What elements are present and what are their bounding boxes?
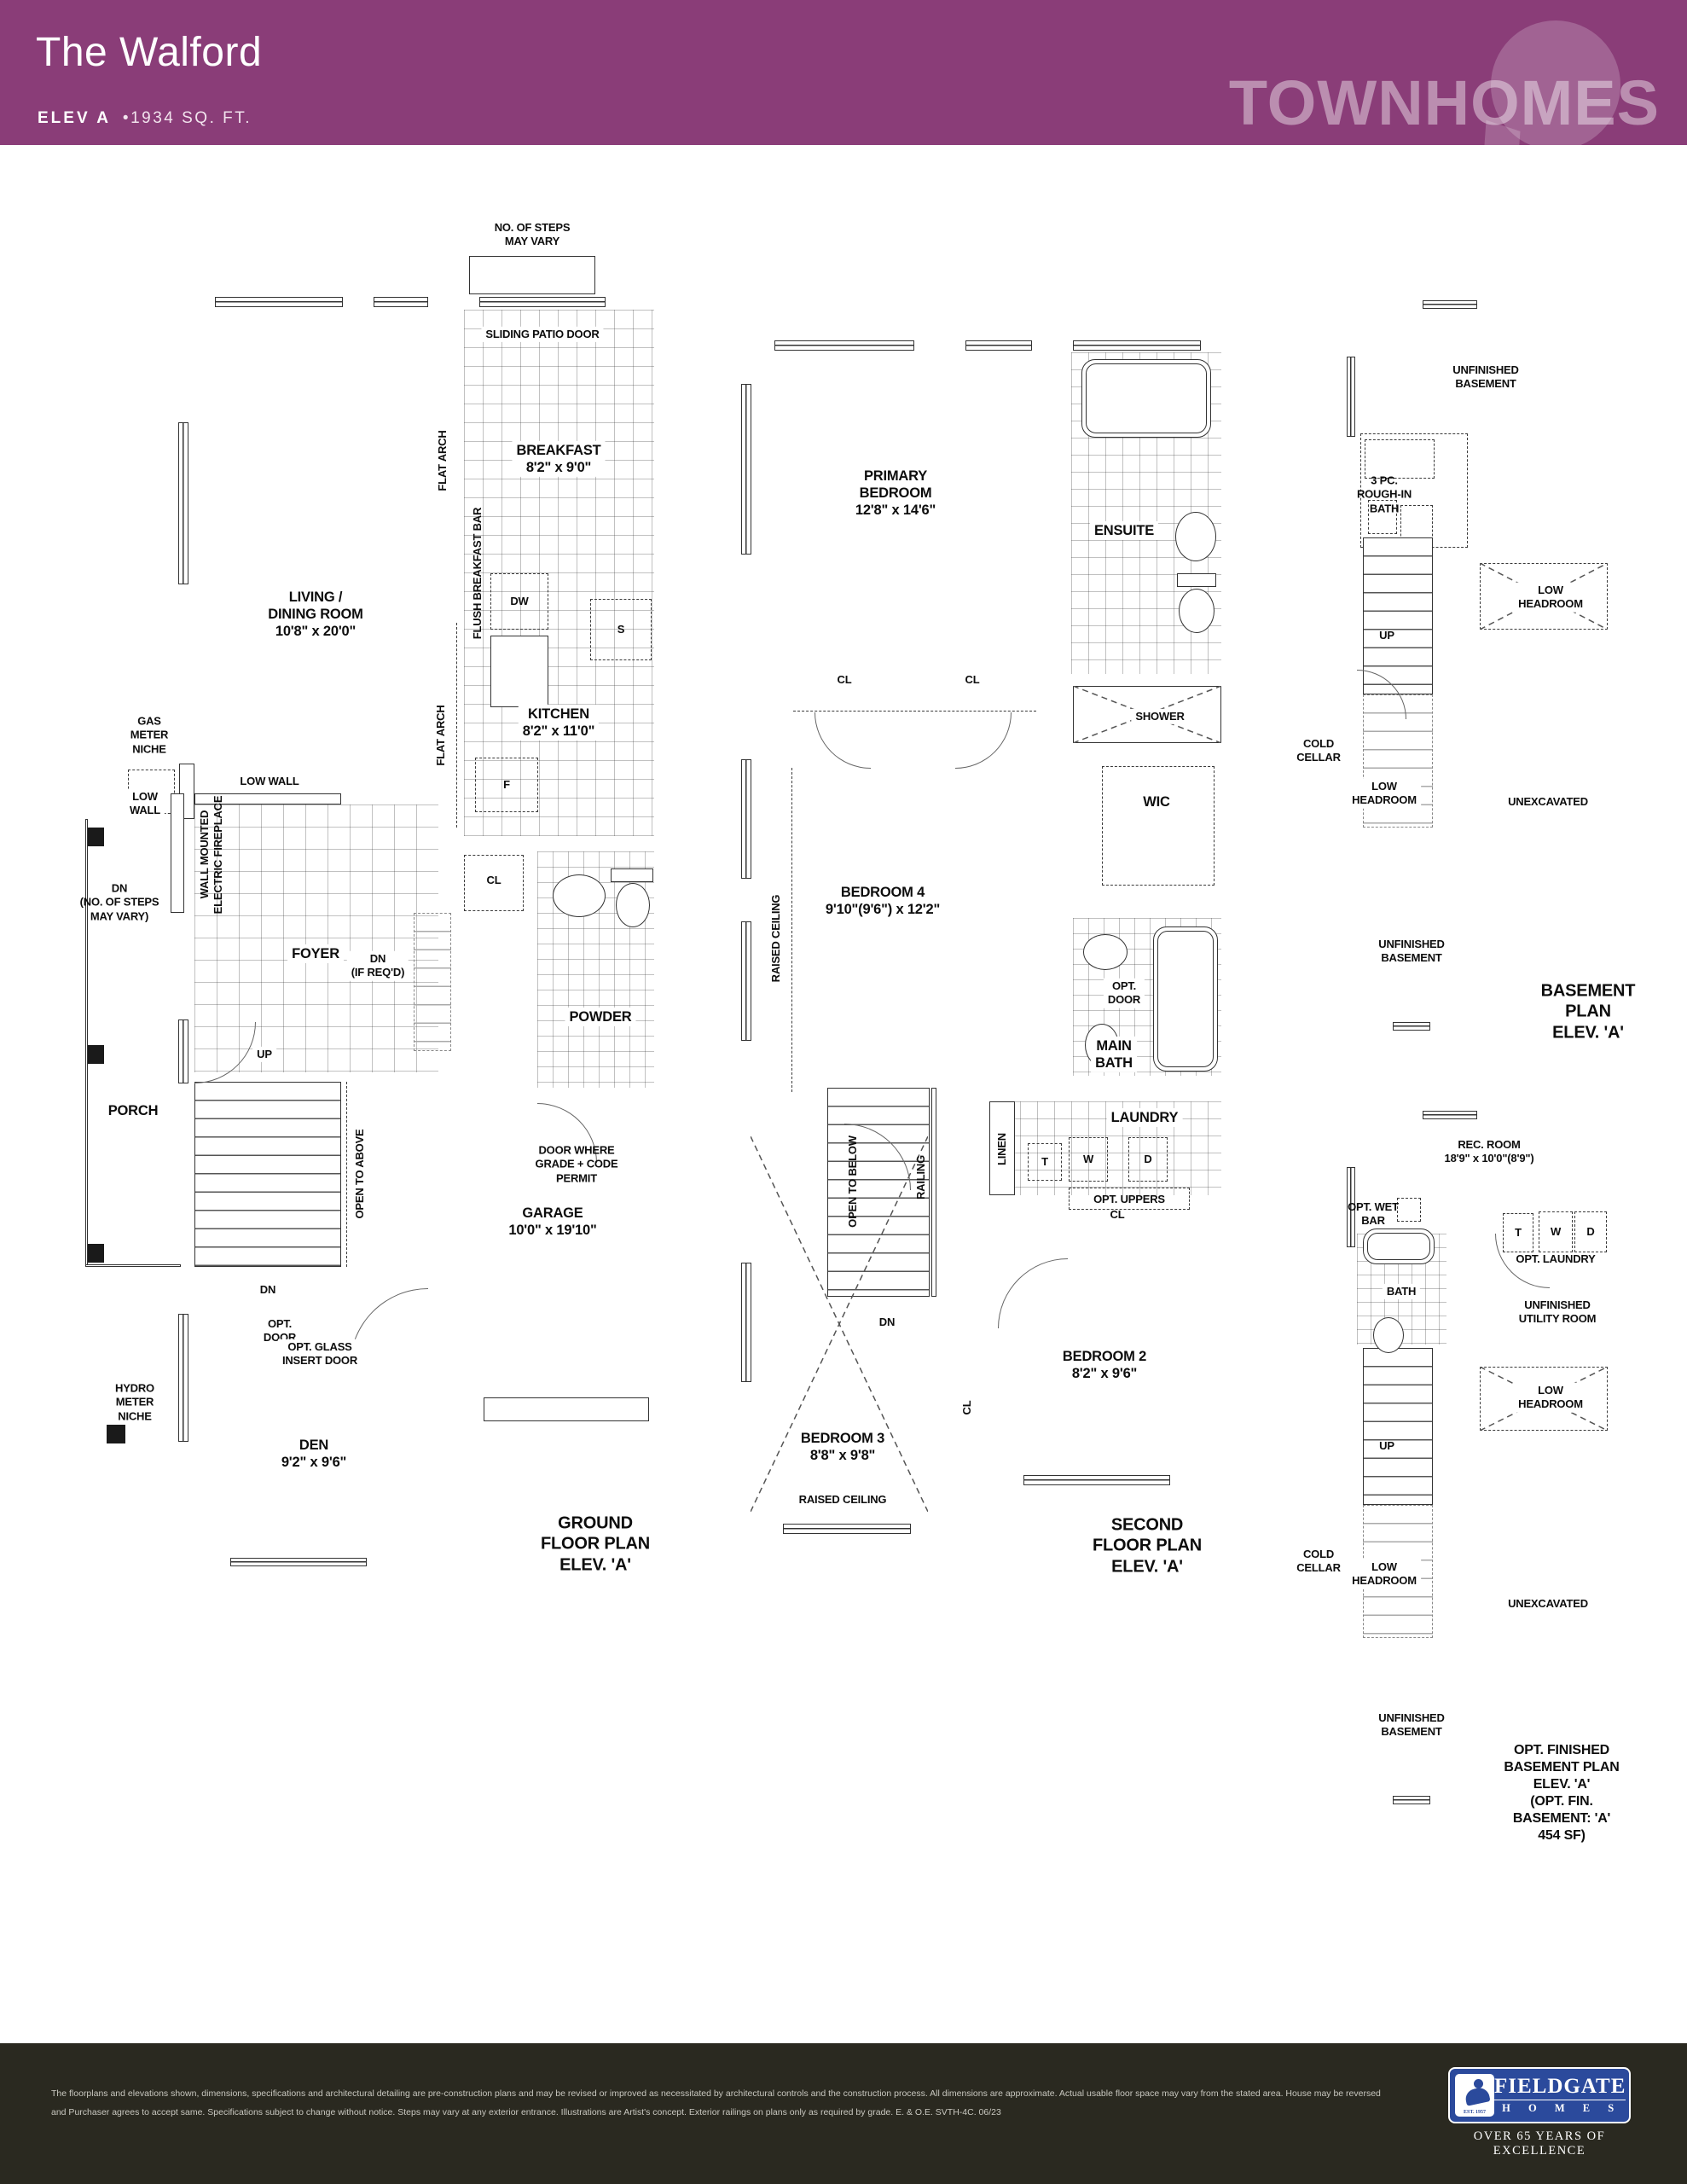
- ground-floor-plan: NO. OF STEPS MAY VARY SLIDING PATIO DOOR…: [60, 205, 708, 1587]
- wall-segment: [1343, 297, 1620, 311]
- wall-segment: [1279, 648, 1291, 793]
- room-label-unexcavated: UNEXCAVATED: [1508, 795, 1588, 809]
- porch-post: [85, 1045, 104, 1064]
- opt-finished-basement-plan: REC. ROOM 18'9" x 10'0"(8'9") OPT. WET B…: [1279, 1092, 1680, 1843]
- window: [1393, 1022, 1430, 1031]
- plan-caption-opt-basement: OPT. FINISHED BASEMENT PLAN ELEV. 'A' (O…: [1503, 1742, 1621, 1844]
- door-swing: [194, 1022, 256, 1083]
- room-label-powder: POWDER: [565, 1008, 635, 1026]
- room-label-unfinished-basement-2: UNFINISHED BASEMENT: [1378, 938, 1444, 966]
- window: [1347, 357, 1355, 437]
- label-washer: W: [1551, 1225, 1561, 1239]
- note-dn-steps-vary: DN (NO. OF STEPS MAY VARY): [80, 882, 159, 924]
- fixture-outline: [931, 1088, 936, 1297]
- label-flat-arch-lower: FLAT ARCH: [434, 705, 448, 765]
- label-washer: W: [1083, 1153, 1093, 1166]
- elevation-label: ELEV A: [38, 109, 111, 127]
- wall-segment: [609, 836, 670, 851]
- label-sliding-patio-door: SLIDING PATIO DOOR: [481, 327, 603, 342]
- plumbing-fixture: [1179, 589, 1215, 633]
- window: [1423, 300, 1477, 309]
- label-opt-laundry: OPT. LAUNDRY: [1516, 1252, 1595, 1266]
- sqft-label: •1934 SQ. FT.: [123, 109, 252, 127]
- room-label-ensuite: ENSUITE: [1090, 521, 1158, 540]
- wall-segment: [989, 1241, 1003, 1472]
- room-label-living-dining: LIVING / DINING ROOM 10'8" x 20'0": [268, 589, 362, 640]
- staircase: [1363, 537, 1433, 694]
- wall-segment: [1488, 1694, 1620, 1708]
- room-label-cold-cellar: COLD CELLAR: [1296, 1548, 1341, 1576]
- fixture-outline: [484, 1397, 649, 1421]
- room-label-utility: UNFINISHED UTILITY ROOM: [1519, 1298, 1597, 1327]
- wall-segment: [1058, 352, 1071, 674]
- fieldgate-logo-text: FIELDGATE H O M E S: [1494, 2076, 1626, 2115]
- plan-caption-ground: GROUND FLOOR PLAN ELEV. 'A': [539, 1513, 652, 1575]
- porch-post: [85, 1244, 104, 1263]
- wall-segment: [437, 1088, 452, 1420]
- wall-segment: [1073, 743, 1228, 755]
- wall-segment: [1003, 1229, 1237, 1241]
- window: [1423, 1111, 1477, 1119]
- wall-segment: [1475, 627, 1488, 1019]
- label-low-headroom-stairs: LOW HEADROOM: [1348, 1560, 1421, 1589]
- window: [741, 384, 751, 555]
- plan-caption-second: SECOND FLOOR PLAN ELEV. 'A': [1090, 1514, 1205, 1577]
- fieldgate-logo-box: EST. 1957 FIELDGATE H O M E S: [1448, 2067, 1631, 2123]
- page-title: The Walford: [36, 29, 262, 76]
- fieldgate-name: FIELDGATE: [1494, 2076, 1626, 2097]
- room-label-porch: PORCH: [108, 1102, 159, 1119]
- label-railing: RAILING: [914, 1155, 928, 1199]
- room-label-kitchen: KITCHEN 8'2" x 11'0": [519, 705, 599, 741]
- dashed-line: [456, 623, 457, 828]
- label-fireplace: WALL MOUNTED ELECTRIC FIREPLACE: [198, 796, 226, 915]
- dashed-outline: [1397, 1198, 1421, 1222]
- label-closet-3: CL: [1110, 1208, 1125, 1222]
- wall-segment: [1343, 793, 1357, 1019]
- fixture-outline: [490, 636, 548, 707]
- bathtub: [1153, 926, 1218, 1072]
- basement-plan: UNFINISHED BASEMENT 3 PC. ROUGH-IN BATH …: [1279, 282, 1680, 1066]
- label-hydro-meter-niche: HYDRO METER NICHE: [115, 1382, 154, 1424]
- wall-segment: [437, 1420, 452, 1570]
- window: [178, 1314, 188, 1442]
- label-up: UP: [1379, 629, 1394, 642]
- label-dn-if-reqd: DN (IF REQ'D): [347, 951, 409, 981]
- room-label-foyer: FOYER: [287, 944, 344, 963]
- label-opt-wet-bar: OPT. WET BAR: [1348, 1200, 1399, 1228]
- note-steps-may-vary: NO. OF STEPS MAY VARY: [495, 221, 571, 249]
- door-swing: [998, 1258, 1068, 1328]
- room-label-breakfast: BREAKFAST 8'2" x 9'0": [512, 441, 605, 477]
- fixture-outline: [85, 1264, 181, 1267]
- door-swing: [815, 712, 871, 769]
- wall-segment: [384, 1072, 437, 1088]
- window: [1393, 1796, 1430, 1804]
- label-dishwasher: DW: [510, 595, 528, 608]
- label-linen: LINEN: [995, 1133, 1009, 1165]
- label-raised-ceiling-bed4: RAISED CEILING: [769, 895, 783, 983]
- brand-logo-townhomes: TOWNHOMES: [1229, 67, 1660, 139]
- wall-segment: [1343, 1604, 1357, 1792]
- crest-figure-head: [1474, 2079, 1483, 2088]
- fieldgate-crest-icon: EST. 1957: [1455, 2074, 1494, 2117]
- wall-segment: [1073, 1076, 1228, 1088]
- elevation-subtitle: ELEV A•1934 SQ. FT.: [38, 109, 252, 128]
- dashed-line: [793, 711, 1036, 712]
- wall-segment: [1475, 1429, 1488, 1792]
- crest-figure-body: [1464, 2086, 1490, 2106]
- door-swing: [955, 712, 1012, 769]
- dashed-line: [346, 1082, 347, 1267]
- wall-segment: [1356, 1019, 1544, 1032]
- header-banner: TOWNHOMES The Walford ELEV A•1934 SQ. FT…: [0, 0, 1687, 145]
- room-label-bedroom2: BEDROOM 2 8'2" x 9'6": [1063, 1348, 1146, 1382]
- wall-segment: [1495, 1194, 1607, 1206]
- porch-post: [107, 1425, 125, 1443]
- fixture-outline: [611, 868, 653, 882]
- label-tub-t: T: [1515, 1226, 1522, 1240]
- window: [1073, 340, 1201, 351]
- window: [215, 297, 343, 307]
- window: [374, 297, 428, 307]
- label-sink: S: [617, 623, 624, 636]
- note-door-where-grade: DOOR WHERE GRADE + CODE PERMIT: [536, 1144, 618, 1186]
- staircase-dashed: [414, 913, 451, 1051]
- room-label-garage: GARAGE 10'0" x 19'10": [508, 1205, 596, 1239]
- wall-segment: [524, 851, 537, 1088]
- label-shower: SHOWER: [1131, 709, 1188, 724]
- porch-post: [85, 828, 104, 846]
- label-dn-basement: DN: [260, 1283, 275, 1297]
- label-rough-in-bath: 3 PC. ROUGH-IN BATH: [1357, 474, 1412, 516]
- room-label-laundry: LAUNDRY: [1107, 1108, 1183, 1127]
- label-low-headroom-right: LOW HEADROOM: [1514, 1383, 1587, 1413]
- dashed-outline: [1365, 439, 1435, 479]
- wall-segment: [450, 310, 464, 617]
- plumbing-fixture: [1175, 512, 1216, 561]
- label-open-to-below: OPEN TO BELOW: [846, 1136, 860, 1228]
- window: [230, 1558, 367, 1566]
- room-label-unfinished-basement: UNFINISHED BASEMENT: [1452, 363, 1518, 392]
- wall-segment: [1433, 537, 1446, 759]
- room-label-den: DEN 9'2" x 9'6": [281, 1437, 346, 1471]
- bathtub: [1081, 359, 1211, 438]
- room-label-wic: WIC: [1143, 793, 1169, 810]
- staircase: [194, 1082, 341, 1267]
- window: [741, 759, 751, 879]
- label-fridge: F: [503, 778, 510, 792]
- window: [965, 340, 1032, 351]
- room-label-cold-cellar: COLD CELLAR: [1296, 737, 1341, 765]
- fixture-outline: [1177, 573, 1216, 587]
- wall-segment: [1607, 297, 1620, 785]
- label-low-wall-mid: LOW WALL: [235, 774, 303, 789]
- window: [178, 1019, 188, 1083]
- plumbing-fixture: [616, 883, 650, 927]
- label-opt-door: OPT. DOOR: [1104, 979, 1145, 1008]
- note-opt-glass-door: OPT. GLASS INSERT DOOR: [278, 1339, 362, 1369]
- wall-segment: [654, 294, 670, 1493]
- wall-segment: [1343, 537, 1357, 648]
- flyer-page: TOWNHOMES The Walford ELEV A•1934 SQ. FT…: [0, 0, 1687, 2184]
- label-low-wall-left: LOW WALL: [125, 789, 165, 819]
- crest-est-label: EST. 1957: [1455, 2110, 1494, 2115]
- room-label-bath: BATH: [1383, 1284, 1420, 1299]
- label-flat-arch-upper: FLAT ARCH: [436, 430, 449, 491]
- fixture-outline: [469, 256, 595, 294]
- window: [774, 340, 914, 351]
- wall-segment: [1073, 892, 1228, 904]
- room-label-main-bath: MAIN BATH: [1091, 1037, 1137, 1072]
- window: [1023, 1475, 1170, 1485]
- room-label-rec-room: REC. ROOM 18'9" x 10'0"(8'9"): [1445, 1138, 1534, 1166]
- dashed-outline: [1102, 766, 1215, 886]
- label-dn: DN: [879, 1316, 895, 1329]
- label-closet-2b: CL: [965, 673, 980, 687]
- window: [783, 1524, 911, 1534]
- wall-segment: [1073, 674, 1228, 686]
- wall-segment: [1279, 1459, 1291, 1604]
- window: [178, 422, 188, 584]
- wall-segment: [1607, 1107, 1620, 1708]
- staircase: [1363, 1348, 1433, 1505]
- label-low-headroom-stairs: LOW HEADROOM: [1348, 779, 1421, 809]
- fixture-outline: [171, 793, 184, 913]
- label-dryer: D: [1144, 1153, 1151, 1166]
- window: [741, 1263, 751, 1382]
- label-dryer: D: [1586, 1225, 1594, 1239]
- plumbing-fixture: [553, 874, 606, 917]
- wall-segment: [908, 644, 920, 712]
- wall-segment: [989, 1088, 1237, 1101]
- fieldgate-logo: EST. 1957 FIELDGATE H O M E S OVER 65 YE…: [1441, 2067, 1638, 2158]
- wall-segment: [1343, 1107, 1620, 1121]
- footer-bar: The floorplans and elevations shown, dim…: [0, 2043, 1687, 2184]
- plan-caption-basement: BASEMENT PLAN ELEV. 'A': [1541, 980, 1636, 1043]
- bathtub: [1363, 1228, 1435, 1264]
- wall-segment: [1343, 1348, 1357, 1459]
- label-open-to-above: OPEN TO ABOVE: [353, 1129, 367, 1218]
- wall-segment: [1343, 648, 1357, 793]
- plumbing-fixture: [1083, 934, 1128, 970]
- wall-segment: [537, 1088, 670, 1103]
- fieldgate-homes: H O M E S: [1494, 2100, 1626, 2115]
- label-closet-4: CL: [960, 1401, 974, 1415]
- room-label-unexcavated: UNEXCAVATED: [1508, 1597, 1588, 1611]
- wall-segment: [1446, 1234, 1458, 1356]
- second-floor-plan: PRIMARY BEDROOM 12'8" x 14'6" ENSUITE SH…: [716, 256, 1262, 1604]
- label-flush-breakfast-bar: FLUSH BREAKFAST BAR: [471, 508, 484, 639]
- window: [741, 921, 751, 1041]
- label-low-headroom-right: LOW HEADROOM: [1514, 583, 1587, 613]
- disclaimer-text: The floorplans and elevations shown, dim…: [51, 2084, 1382, 2122]
- wall-segment: [1433, 1348, 1446, 1570]
- wall-segment: [450, 836, 553, 851]
- wall-segment: [757, 629, 1058, 644]
- plumbing-fixture: [1373, 1317, 1404, 1353]
- label-tub-t: T: [1041, 1155, 1048, 1169]
- dashed-line: [791, 768, 792, 1092]
- room-label-bedroom4: BEDROOM 4 9'10"(9'6") x 12'2": [826, 884, 940, 918]
- room-label-unfinished-basement: UNFINISHED BASEMENT: [1378, 1711, 1444, 1740]
- wall-segment: [1221, 337, 1237, 1487]
- window: [479, 297, 606, 307]
- fieldgate-tagline: OVER 65 YEARS OF EXCELLENCE: [1441, 2129, 1638, 2158]
- label-opt-uppers: OPT. UPPERS: [1093, 1193, 1165, 1206]
- room-label-bedroom3: BEDROOM 3 8'8" x 9'8": [801, 1430, 884, 1464]
- wall-segment: [1488, 771, 1620, 785]
- label-up: UP: [252, 1047, 276, 1062]
- label-closet: CL: [487, 874, 501, 887]
- label-gas-meter-niche: GAS METER NICHE: [130, 715, 169, 757]
- label-closet-1: CL: [838, 673, 852, 687]
- room-label-primary-bedroom: PRIMARY BEDROOM 12'8" x 14'6": [855, 468, 936, 519]
- label-raised-ceiling-bed3: RAISED CEILING: [799, 1493, 887, 1507]
- label-up: UP: [1379, 1439, 1394, 1453]
